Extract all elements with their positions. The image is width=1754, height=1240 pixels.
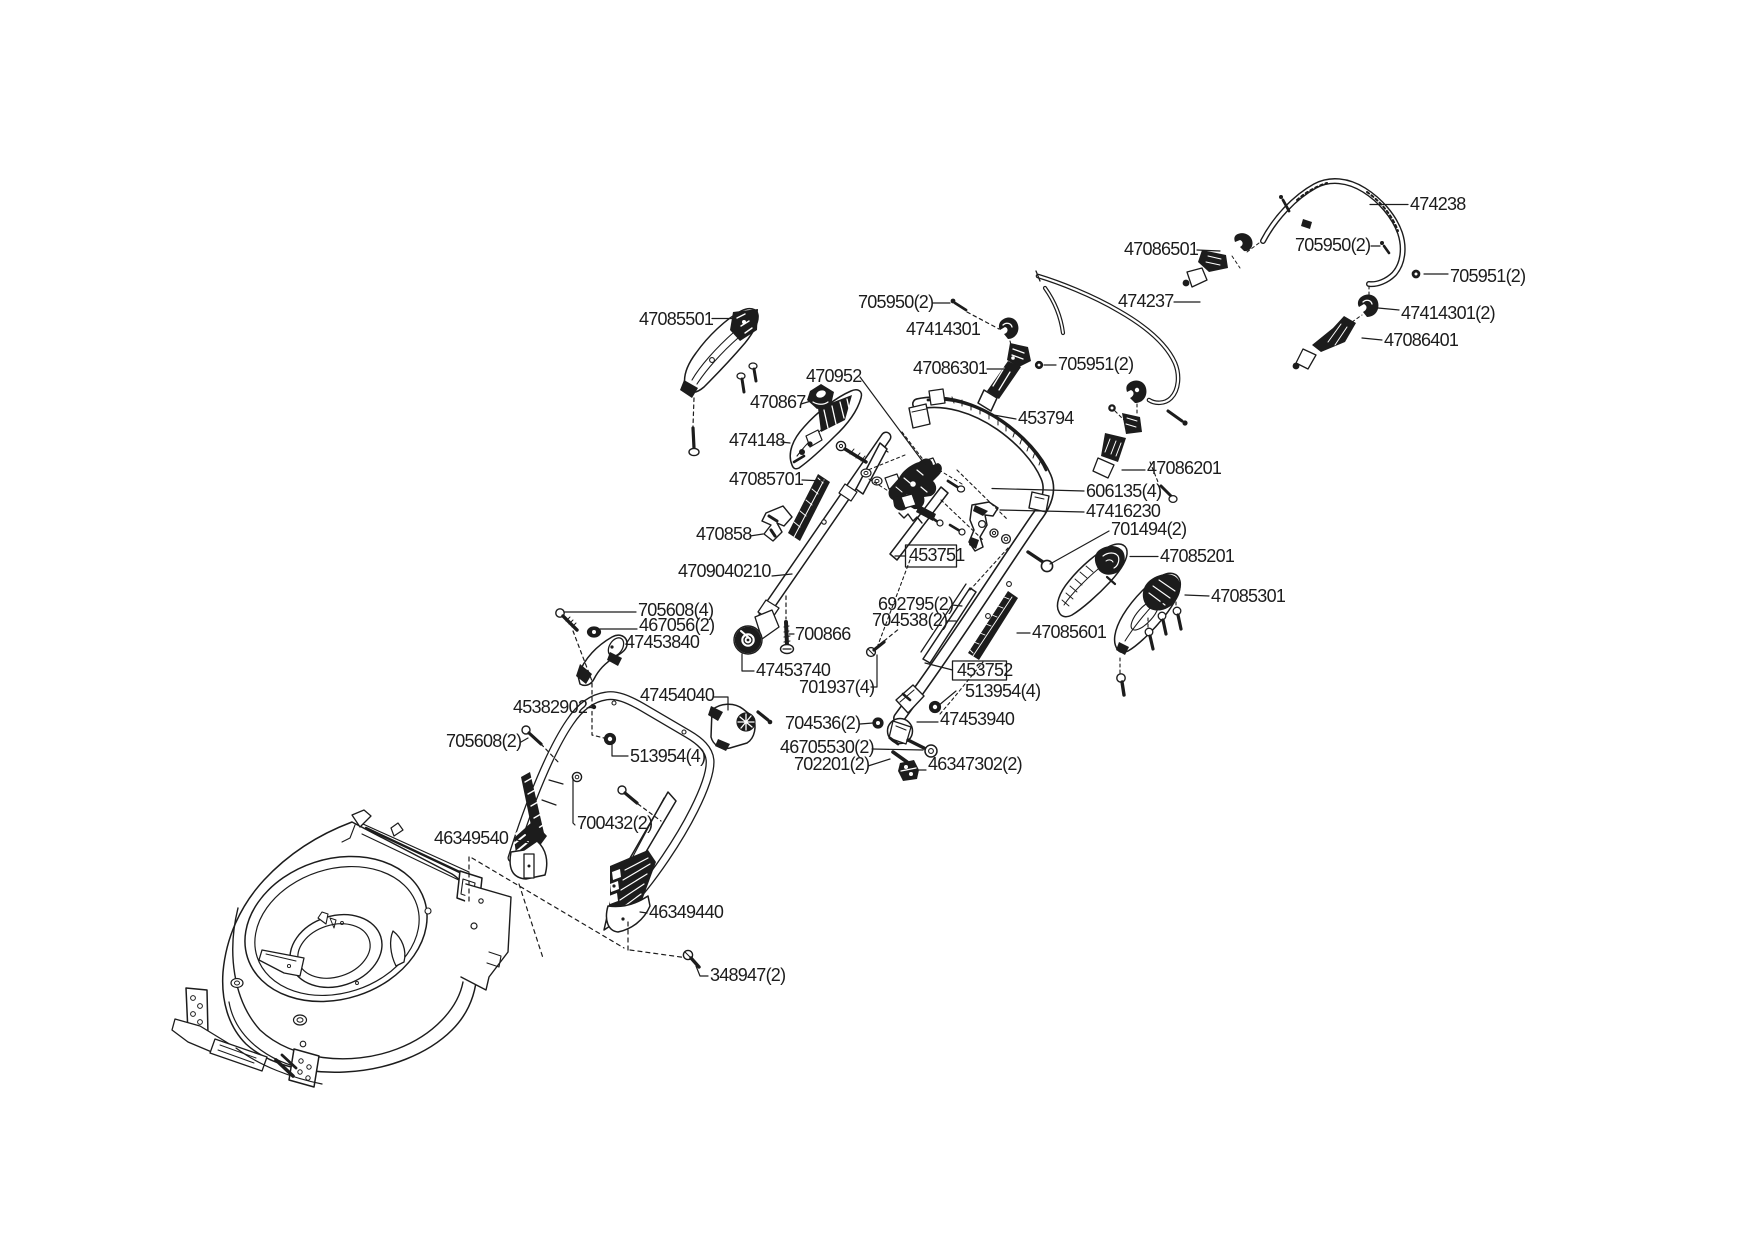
svg-text:470867: 470867 <box>750 392 806 412</box>
svg-text:701937(4): 701937(4) <box>799 677 874 697</box>
svg-text:47086301: 47086301 <box>913 358 988 378</box>
svg-text:47416230: 47416230 <box>1086 501 1161 521</box>
svg-text:702201(2): 702201(2) <box>794 754 869 774</box>
svg-text:513954(4): 513954(4) <box>965 681 1040 701</box>
svg-text:705951(2): 705951(2) <box>1058 354 1133 374</box>
svg-text:47086501: 47086501 <box>1124 239 1199 259</box>
svg-text:47085601: 47085601 <box>1032 622 1107 642</box>
svg-text:705951(2): 705951(2) <box>1450 266 1525 286</box>
svg-text:47086401: 47086401 <box>1384 330 1459 350</box>
svg-text:47086201: 47086201 <box>1147 458 1222 478</box>
svg-text:45382902: 45382902 <box>513 697 588 717</box>
svg-text:47085501: 47085501 <box>639 309 714 329</box>
svg-text:474238: 474238 <box>1410 194 1466 214</box>
svg-text:46349540: 46349540 <box>434 828 509 848</box>
svg-text:46347302(2): 46347302(2) <box>928 754 1022 774</box>
svg-text:47454040: 47454040 <box>640 685 715 705</box>
svg-text:701494(2): 701494(2) <box>1111 519 1186 539</box>
svg-text:705950(2): 705950(2) <box>858 292 933 312</box>
svg-text:704536(2): 704536(2) <box>785 713 860 733</box>
svg-text:453751: 453751 <box>909 545 965 565</box>
svg-text:474148: 474148 <box>729 430 785 450</box>
svg-text:705950(2): 705950(2) <box>1295 235 1370 255</box>
svg-text:47453840: 47453840 <box>625 632 700 652</box>
svg-text:4709040210: 4709040210 <box>678 561 771 581</box>
svg-text:705608(2): 705608(2) <box>446 731 521 751</box>
svg-text:470858: 470858 <box>696 524 752 544</box>
svg-text:513954(4): 513954(4) <box>630 746 705 766</box>
svg-text:606135(4): 606135(4) <box>1086 481 1161 501</box>
svg-text:46349440: 46349440 <box>649 902 724 922</box>
svg-text:470952: 470952 <box>806 366 862 386</box>
svg-text:700866: 700866 <box>795 624 851 644</box>
svg-text:47414301: 47414301 <box>906 319 981 339</box>
svg-text:47453940: 47453940 <box>940 709 1015 729</box>
svg-text:453752: 453752 <box>957 660 1013 680</box>
svg-text:453794: 453794 <box>1018 408 1074 428</box>
svg-text:47085201: 47085201 <box>1160 546 1235 566</box>
svg-text:700432(2): 700432(2) <box>577 813 652 833</box>
svg-text:348947(2): 348947(2) <box>710 965 785 985</box>
svg-text:47085301: 47085301 <box>1211 586 1286 606</box>
svg-text:474237: 474237 <box>1118 291 1174 311</box>
svg-text:47414301(2): 47414301(2) <box>1401 303 1495 323</box>
svg-text:704538(2): 704538(2) <box>872 610 947 630</box>
svg-text:47085701: 47085701 <box>729 469 804 489</box>
